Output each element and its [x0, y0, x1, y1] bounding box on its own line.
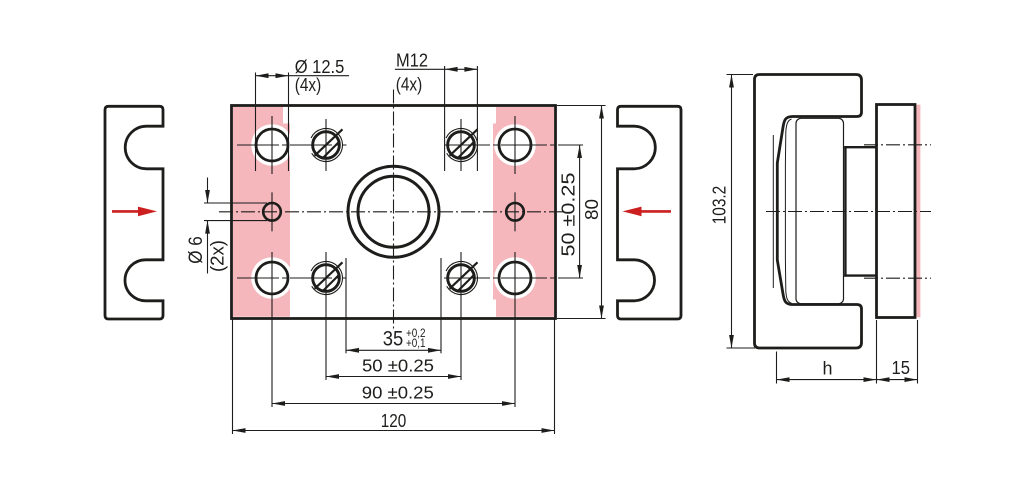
svg-text:15: 15 — [892, 357, 911, 378]
svg-text:M12: M12 — [396, 50, 428, 71]
svg-text:h: h — [823, 358, 833, 379]
svg-text:50 ±0.25: 50 ±0.25 — [362, 356, 434, 376]
svg-text:(4x): (4x) — [295, 74, 322, 95]
svg-text:+0,1: +0,1 — [406, 336, 426, 350]
svg-text:103.2: 103.2 — [709, 186, 730, 225]
svg-text:Ø 6: Ø 6 — [186, 236, 207, 264]
svg-text:(2x): (2x) — [207, 240, 228, 272]
svg-text:90 ±0.25: 90 ±0.25 — [362, 383, 434, 403]
svg-text:80: 80 — [581, 199, 602, 220]
svg-text:120: 120 — [381, 410, 407, 431]
svg-text:(4x): (4x) — [396, 73, 423, 94]
svg-text:50 ±0.25: 50 ±0.25 — [557, 173, 578, 257]
svg-text:35: 35 — [383, 327, 404, 351]
